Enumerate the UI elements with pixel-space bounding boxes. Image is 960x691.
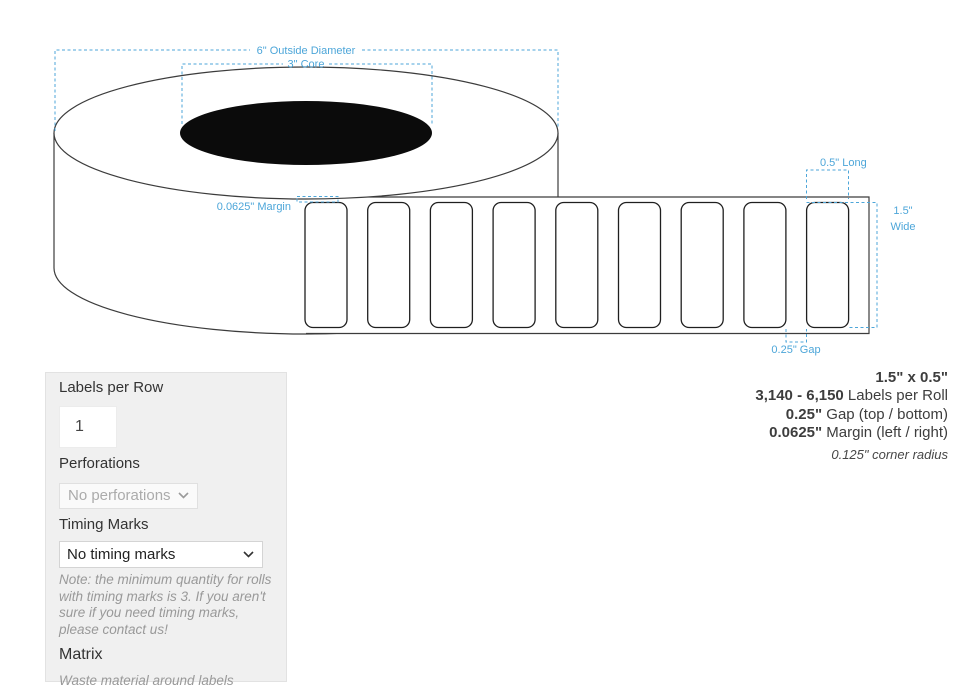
roll-core-hole bbox=[180, 101, 432, 165]
label-shape bbox=[807, 203, 849, 328]
spec-gap: 0.25" Gap (top / bottom) bbox=[755, 406, 948, 424]
perforations-label: Perforations bbox=[59, 455, 273, 472]
roll-diagram: 6" Outside Diameter 3" Core 0.0625" Marg… bbox=[0, 0, 960, 365]
spec-gap-text: Gap (top / bottom) bbox=[822, 406, 948, 423]
timing-marks-note: Note: the minimum quantity for rolls wit… bbox=[59, 572, 273, 638]
chevron-down-icon bbox=[243, 551, 254, 558]
label-shape bbox=[368, 203, 410, 328]
perforations-selected-value: No perforations bbox=[68, 488, 171, 503]
matrix-label: Matrix bbox=[59, 646, 273, 664]
chevron-down-icon bbox=[178, 492, 189, 499]
spec-margin-text: Margin (left / right) bbox=[822, 424, 948, 441]
timing-marks-selected-value: No timing marks bbox=[67, 547, 175, 562]
spec-quantity: 3,140 - 6,150 Labels per Roll bbox=[755, 387, 948, 405]
labels-per-row-label: Labels per Row bbox=[59, 379, 273, 396]
annotation-wide: 1.5" bbox=[893, 205, 912, 217]
spec-summary: 1.5" x 0.5" 3,140 - 6,150 Labels per Rol… bbox=[755, 369, 948, 463]
label-shape bbox=[430, 203, 472, 328]
long-bracket bbox=[807, 170, 849, 199]
label-shape bbox=[556, 203, 598, 328]
spec-size-value: 1.5" x 0.5" bbox=[875, 369, 948, 386]
annotation-margin: 0.0625" Margin bbox=[217, 201, 291, 213]
spec-quantity-text: Labels per Roll bbox=[844, 387, 948, 404]
label-shape bbox=[744, 203, 786, 328]
options-panel: Labels per Row Perforations No perforati… bbox=[45, 372, 287, 682]
annotation-long: 0.5" Long bbox=[820, 157, 867, 169]
spec-size: 1.5" x 0.5" bbox=[755, 369, 948, 387]
label-shape bbox=[619, 203, 661, 328]
labels-per-row-input[interactable] bbox=[59, 406, 117, 448]
spec-margin-value: 0.0625" bbox=[769, 424, 822, 441]
annotation-outside-diameter: 6" Outside Diameter bbox=[257, 45, 356, 57]
labels-row bbox=[305, 203, 849, 328]
matrix-description: Waste material around labels bbox=[59, 673, 273, 688]
label-shape bbox=[305, 203, 347, 328]
spec-gap-value: 0.25" bbox=[786, 406, 822, 423]
label-shape bbox=[681, 203, 723, 328]
spec-margin: 0.0625" Margin (left / right) bbox=[755, 424, 948, 442]
perforations-select[interactable]: No perforations bbox=[59, 483, 198, 509]
timing-marks-label: Timing Marks bbox=[59, 516, 273, 533]
annotation-wide: Wide bbox=[890, 221, 915, 233]
label-shape bbox=[493, 203, 535, 328]
timing-marks-select[interactable]: No timing marks bbox=[59, 541, 263, 568]
annotation-core: 3" Core bbox=[288, 59, 325, 71]
spec-quantity-value: 3,140 - 6,150 bbox=[755, 387, 843, 404]
spec-corner-radius: 0.125" corner radius bbox=[755, 446, 948, 463]
label-configurator-page: 6" Outside Diameter 3" Core 0.0625" Marg… bbox=[0, 0, 960, 691]
annotation-gap: 0.25" Gap bbox=[771, 344, 820, 356]
